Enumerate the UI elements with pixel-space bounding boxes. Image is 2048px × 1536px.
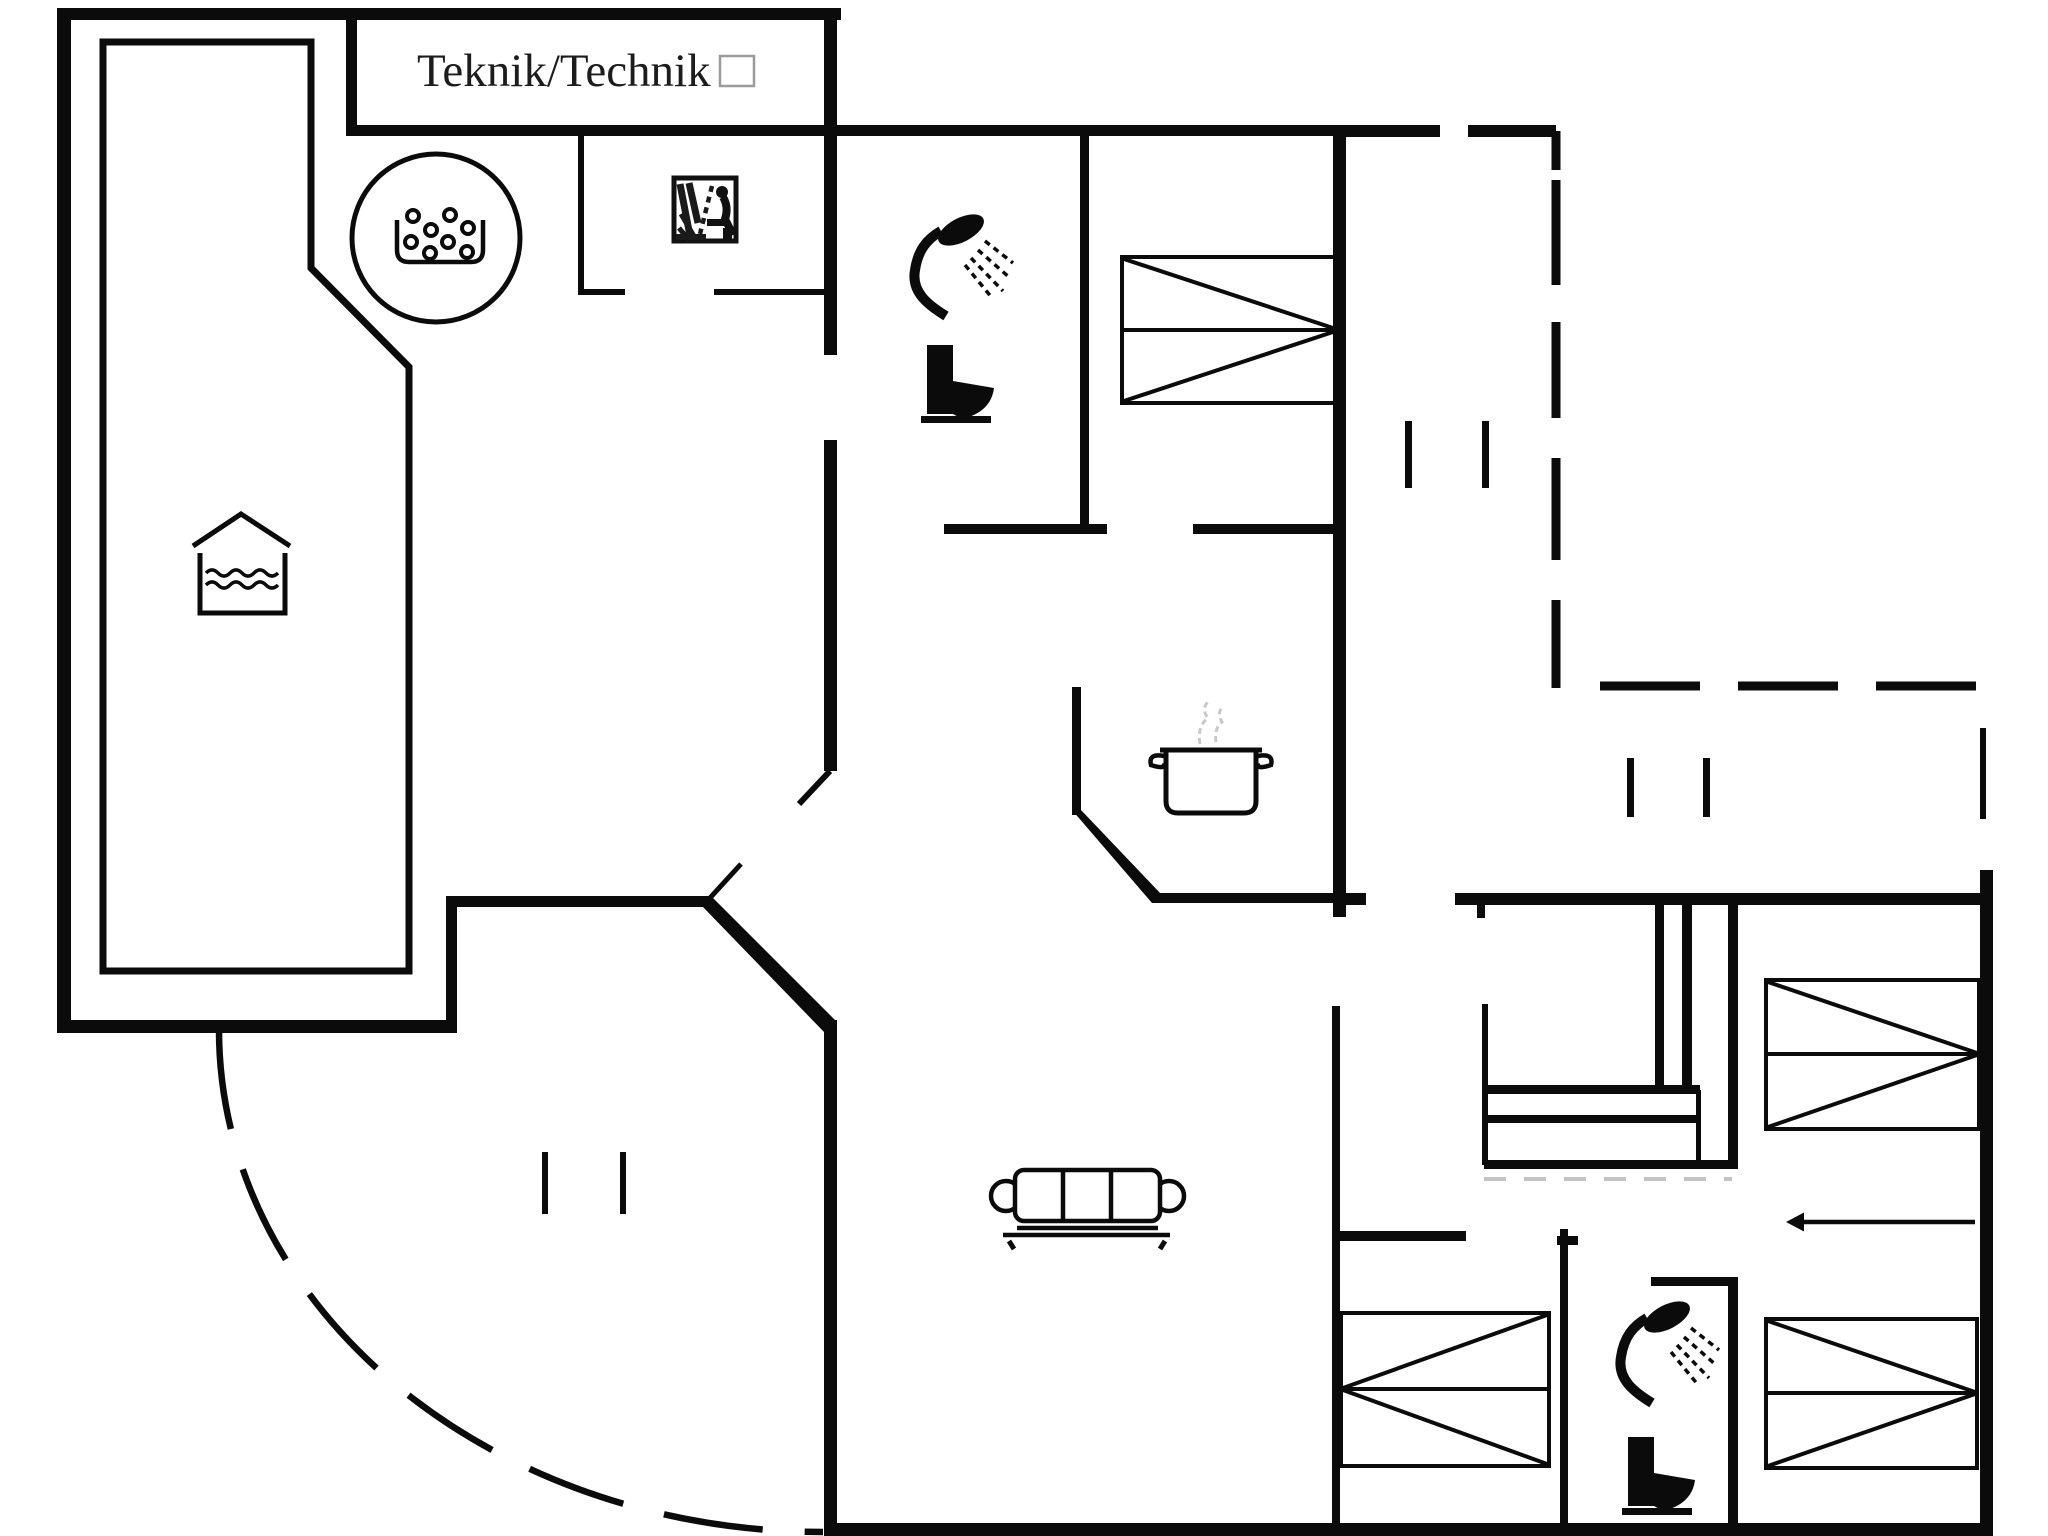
svg-text:Teknik/Technik: Teknik/Technik <box>417 45 711 97</box>
